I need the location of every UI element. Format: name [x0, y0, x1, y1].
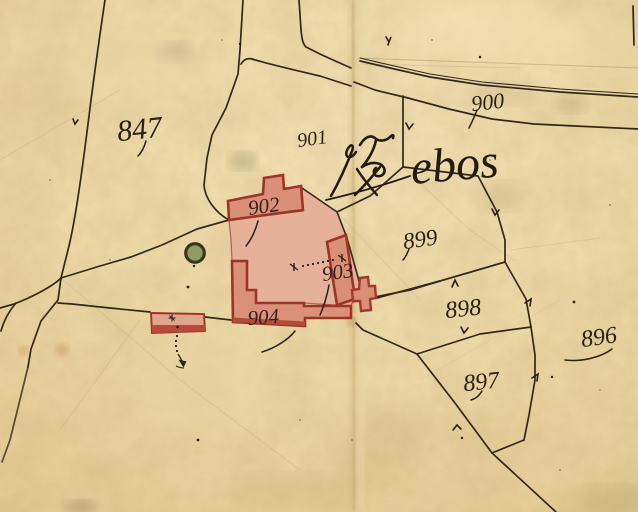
- svg-text:899: 899: [401, 224, 439, 254]
- svg-text:903: 903: [320, 258, 355, 286]
- svg-text:901: 901: [296, 126, 329, 152]
- svg-text:896: 896: [579, 322, 618, 353]
- svg-text:898: 898: [444, 294, 483, 324]
- svg-text:ebos: ebos: [408, 134, 500, 194]
- svg-text:904: 904: [247, 304, 281, 330]
- svg-text:902: 902: [247, 192, 282, 220]
- svg-text:847: 847: [115, 110, 165, 148]
- svg-text:900: 900: [470, 88, 505, 116]
